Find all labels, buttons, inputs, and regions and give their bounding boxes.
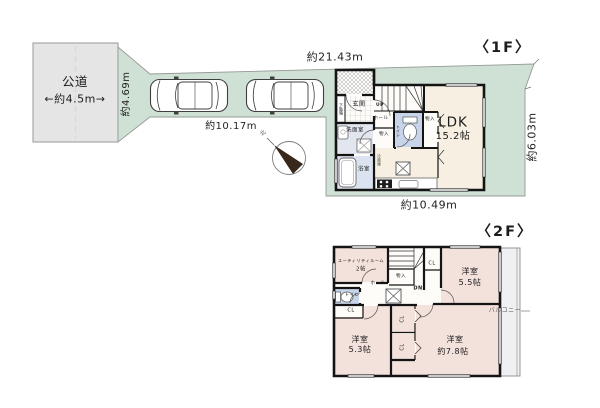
shaft-box-2f [386, 289, 401, 303]
entrance-label: 玄関 [352, 102, 365, 108]
parked-car-2 [247, 77, 324, 115]
floor-hatch-box [396, 162, 410, 175]
bedroom-b-label: 洋室 [352, 336, 369, 344]
dim-right: 約6.03m [527, 112, 538, 161]
floorplan-canvas [0, 0, 600, 408]
bathtub-icon [339, 158, 356, 187]
compass [267, 138, 306, 175]
shoe-cabinet-label: 下駄箱 [339, 103, 343, 115]
dim-top: 約21.43m [307, 52, 364, 63]
hall-1f-label: ホール [374, 117, 389, 122]
floor2-title: 〈2F〉 [477, 225, 534, 240]
bedroom-c-size-label: 約7.8帖 [437, 348, 468, 356]
dim-frontage: 約4.69m [122, 71, 132, 116]
storage-2f-label: 物入 [396, 275, 406, 280]
hall-2f-label: ホール [371, 282, 386, 287]
parked-car-1 [151, 77, 228, 115]
closet-d-label: CL [401, 343, 406, 350]
washroom-label: 洗面室 [346, 128, 364, 134]
floorplan-page: 公道 ←約4.5m→ 約4.69m 約21.43m 約10.17m 約10.49… [0, 0, 600, 408]
ldk-label: LDK [438, 116, 468, 130]
road-width-label: ←約4.5m→ [44, 94, 105, 105]
stairs-dn-label: DN [413, 287, 422, 292]
floor1-title: 〈1F〉 [475, 41, 532, 56]
toilet-1f-label: トイレ [396, 125, 400, 137]
storage-ldk-label: 物入 [425, 118, 435, 123]
utility-label: ユーティリティルーム [338, 259, 384, 263]
bedroom-b-size-label: 5.3帖 [349, 346, 372, 354]
stairs-up-label: UP [376, 104, 384, 109]
ldk-size-label: 15.2帖 [436, 132, 471, 142]
bathroom-label: 浴室 [358, 167, 370, 173]
storage-hall-label: 物入 [379, 133, 389, 138]
utility-size-label: 2帖 [356, 267, 366, 273]
dim-driveway: 約10.17m [205, 122, 257, 132]
closet-b-label: CL [347, 309, 354, 314]
balcony-label: バルコニー [489, 308, 521, 314]
kitchen-counter [375, 178, 437, 189]
bedroom-a-size-label: 5.5帖 [459, 279, 482, 287]
bedroom-a-label: 洋室 [462, 268, 479, 276]
toilet-2f-label: トイレ [345, 294, 360, 299]
washing-machine-icon [357, 139, 371, 152]
road-label: 公道 [62, 76, 88, 89]
fridge-label: 冷蔵庫 [377, 154, 381, 166]
closet-a-label: CL [428, 262, 435, 267]
bedroom-c-label: 洋室 [447, 336, 464, 344]
dim-bottom: 約10.49m [401, 200, 458, 211]
closet-c-label: CL [401, 315, 406, 322]
